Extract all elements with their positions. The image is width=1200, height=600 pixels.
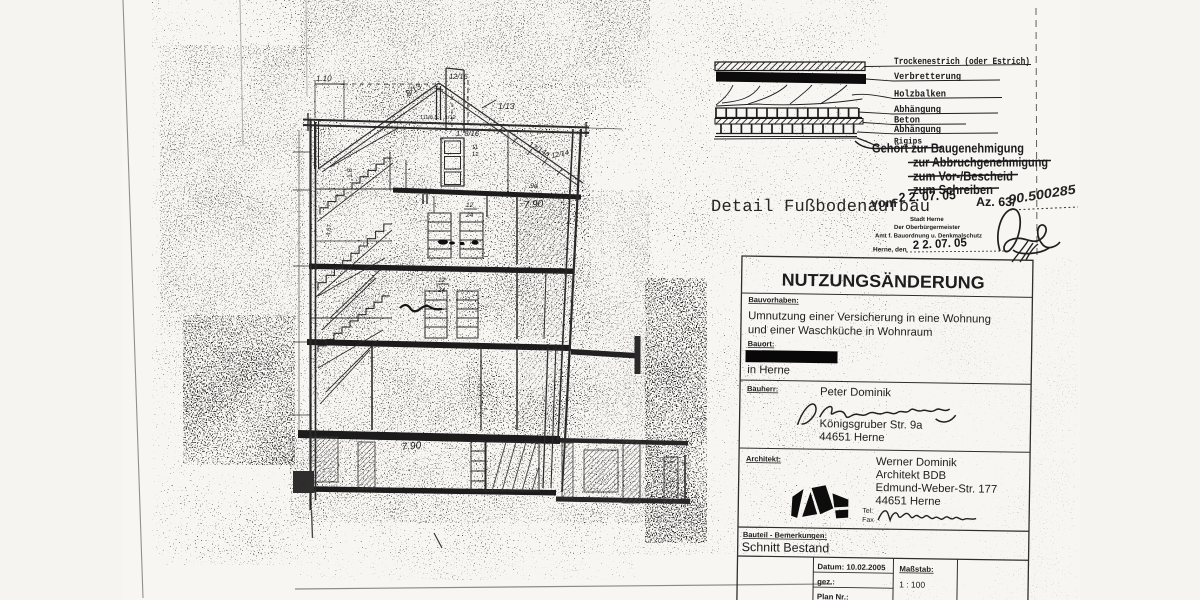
svg-text:in Herne: in Herne bbox=[747, 364, 790, 377]
svg-text:Abhängung: Abhängung bbox=[894, 124, 941, 135]
svg-text:12/16: 12/16 bbox=[449, 72, 469, 81]
svg-text:Detail Fußbodenaufbau: Detail Fußbodenaufbau bbox=[711, 198, 930, 217]
svg-text:Tel:: Tel: bbox=[862, 507, 873, 515]
svg-text:Maßstab:: Maßstab: bbox=[899, 564, 933, 574]
svg-text:Schnitt Bestand: Schnitt Bestand bbox=[742, 540, 830, 555]
svg-text:44651 Herne: 44651 Herne bbox=[819, 431, 884, 444]
svg-text:Bauvorhaben:: Bauvorhaben: bbox=[748, 295, 799, 305]
svg-text:Werner Dominik: Werner Dominik bbox=[876, 456, 957, 469]
svg-text:Bauherr:: Bauherr: bbox=[747, 384, 778, 393]
svg-text:Bauort:: Bauort: bbox=[748, 339, 775, 348]
svg-text:Königsgruber Str. 9a: Königsgruber Str. 9a bbox=[819, 418, 923, 432]
svg-text:Plan Nr.:: Plan Nr.: bbox=[817, 592, 849, 600]
svg-text:NUTZUNGSÄNDERUNG: NUTZUNGSÄNDERUNG bbox=[782, 270, 985, 293]
svg-text:44651 Herne: 44651 Herne bbox=[875, 495, 940, 508]
svg-text:Fax: Fax bbox=[862, 517, 874, 524]
svg-text:2 2. 07. 05: 2 2. 07. 05 bbox=[912, 235, 967, 252]
svg-text:Bauteil - Bemerkungen:: Bauteil - Bemerkungen: bbox=[743, 530, 827, 540]
svg-text:Trockenestrich (oder Estrich): Trockenestrich (oder Estrich) bbox=[894, 56, 1030, 67]
svg-text:Der Oberbürgermeister: Der Oberbürgermeister bbox=[894, 224, 961, 231]
svg-text:Peter Dominik: Peter Dominik bbox=[820, 386, 891, 399]
svg-text:Abhängung: Abhängung bbox=[894, 104, 941, 115]
svg-text:Holzbalken: Holzbalken bbox=[894, 89, 946, 100]
svg-text:Herne, den: Herne, den bbox=[873, 247, 907, 254]
svg-text:gez.:: gez.: bbox=[817, 577, 835, 586]
svg-text:Architekt BDB: Architekt BDB bbox=[876, 469, 946, 482]
svg-text:Verbretterung: Verbretterung bbox=[894, 71, 961, 82]
svg-text:Architekt:: Architekt: bbox=[746, 454, 781, 464]
svg-text:Datum: 10.02.2005: Datum: 10.02.2005 bbox=[817, 562, 886, 572]
svg-text:Edmund-Weber-Str. 177: Edmund-Weber-Str. 177 bbox=[875, 482, 997, 496]
svg-text:Stadt Herne: Stadt Herne bbox=[910, 216, 944, 223]
svg-text:1 : 100: 1 : 100 bbox=[899, 579, 925, 589]
